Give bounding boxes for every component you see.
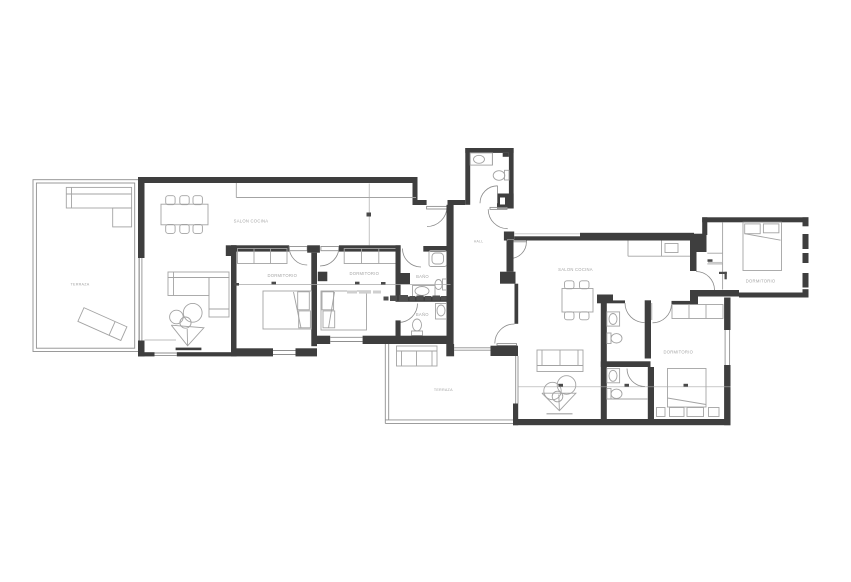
svg-text:DORMITORIO: DORMITORIO xyxy=(267,273,297,278)
svg-text:BAÑO: BAÑO xyxy=(416,274,429,279)
svg-text:DORMITORIO: DORMITORIO xyxy=(663,349,693,354)
svg-text:SALON COCINA: SALON COCINA xyxy=(234,218,269,223)
svg-text:BAÑO: BAÑO xyxy=(416,312,429,317)
svg-text:DORMITORIO: DORMITORIO xyxy=(349,271,379,276)
svg-text:HALL: HALL xyxy=(474,239,483,243)
svg-text:SALON COCINA: SALON COCINA xyxy=(558,267,593,272)
svg-text:DORMITORIO: DORMITORIO xyxy=(746,278,776,283)
svg-text:TERRAZA: TERRAZA xyxy=(71,283,90,287)
svg-text:TERRAZA: TERRAZA xyxy=(434,388,453,392)
